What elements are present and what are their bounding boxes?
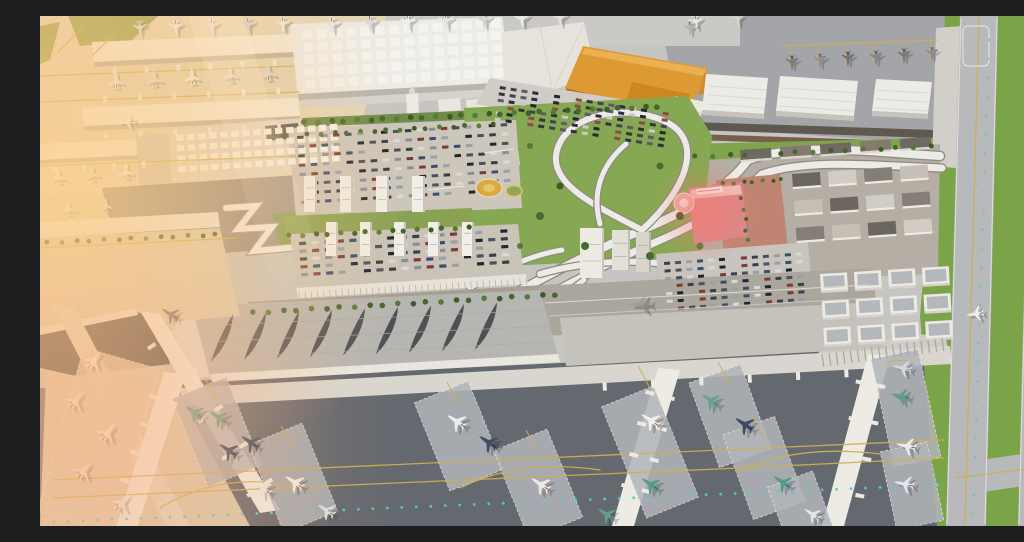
park-tree [527, 143, 533, 149]
jet-bridge-stub [603, 383, 607, 391]
helipad [506, 186, 522, 197]
office-slab-3 [636, 232, 651, 272]
jet-bridge-stub [748, 375, 752, 383]
jet-bridge-stub [844, 369, 848, 377]
park-tree [536, 212, 544, 220]
airport-masterplan-render [40, 16, 1024, 526]
park-tree [646, 252, 654, 260]
tower-top [409, 88, 415, 94]
park-tree [657, 163, 664, 170]
jet-bridge-stub [651, 380, 655, 388]
office-slab-2 [612, 230, 630, 270]
park-tree [581, 242, 589, 250]
hotel-glow [652, 160, 756, 264]
pavilion-1 [438, 98, 461, 112]
office-slab-1 [580, 228, 604, 278]
jet-bridge-stub [796, 372, 800, 380]
park-tree [557, 183, 564, 190]
control-tower-terminal [406, 93, 419, 114]
gold-pavilion-inner [483, 184, 495, 192]
park-tree [517, 243, 523, 249]
jet-bridge-stub [699, 377, 703, 385]
scene-canvas [40, 16, 1024, 526]
